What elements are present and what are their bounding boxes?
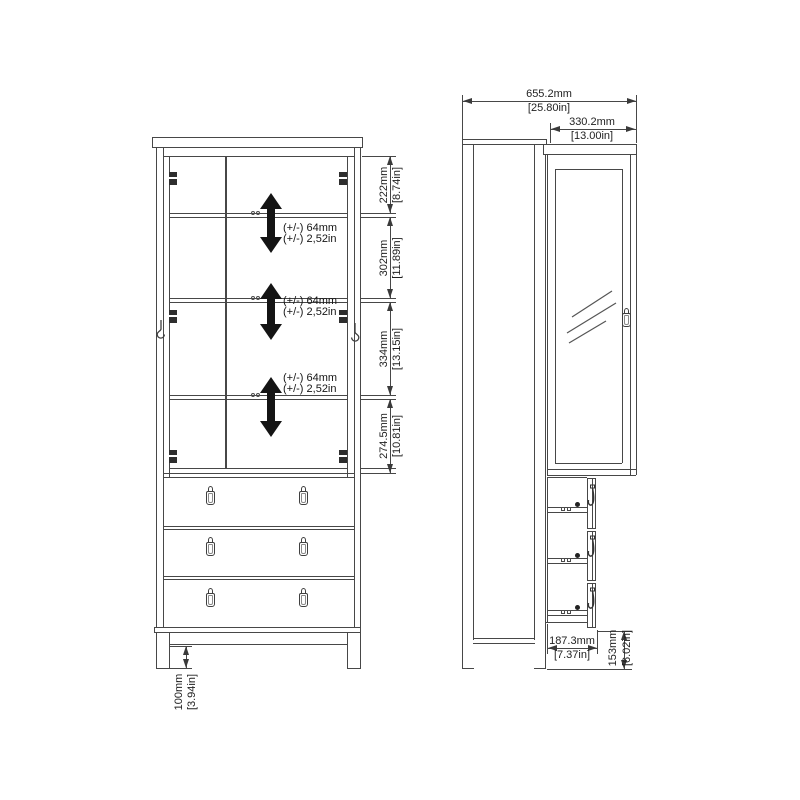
shelf-pin-icon [251,296,260,300]
dim-section4-mm: 274.5mm [378,413,390,459]
dim-section3-mm: 334mm [378,331,390,368]
hinge-icon [169,172,177,185]
dim-drawerheight-inch: [6.02in] [621,630,633,666]
shelf-adjust-note: (+/-) 64mm (+/-) 2,52in [283,296,337,318]
shelf-adjustable-arrow-icon [260,283,282,340]
dim-section2-inch: [11.89in] [391,237,403,278]
dim-depth-mm: 655.2mm [526,88,572,100]
drawer-roller-icon [575,502,580,507]
shelf-adjustable-arrow-icon [260,193,282,253]
shelf-adjustable-arrow-icon [260,377,282,437]
center-partition [225,156,227,468]
drawer-hook-handle-icon [586,536,600,560]
shelf-pin-icon [251,393,260,397]
hinge-icon [169,450,177,463]
hinge-icon [339,172,347,185]
shelf-adjust-note: (+/-) 64mm (+/-) 2,52in [283,373,337,395]
dim-leg-mm: 100mm [173,674,185,711]
dim-drawerext-mm: 187.3mm [549,635,595,647]
front-bottom-board [154,627,361,633]
hinge-icon [169,310,177,323]
dimension-diagram: (+/-) 64mm (+/-) 2,52in (+/-) 64mm (+/-)… [0,0,800,800]
front-top-board [152,137,363,148]
dim-depth-inch: [25.80in] [528,102,570,114]
dim-section4-inch: [10.81in] [391,415,403,457]
drawer-roller-icon [575,605,580,610]
hinge-icon [339,450,347,463]
dim-drawerheight-mm: 153mm [607,630,619,667]
door-edge-handle-icon [154,320,166,340]
dim-doorwidth-inch: [13.00in] [571,130,613,142]
dim-section3-inch: [13.15in] [391,328,403,370]
dim-section2-mm: 302mm [378,240,390,277]
dim-drawerext-inch: [7.37in] [554,649,590,661]
shelf-adjust-note: (+/-) 64mm (+/-) 2,52in [283,223,337,245]
door-edge-handle-icon [350,323,362,343]
drawer-hook-handle-icon [586,485,600,509]
dim-leg-inch: [3.94in] [186,674,198,710]
dim-section1-inch: [8.74in] [391,167,403,203]
shelf-pin-icon [251,211,260,215]
dim-section1-mm: 222mm [378,167,390,204]
drawer-hook-handle-icon [586,588,600,612]
drawer-roller-icon [575,553,580,558]
dim-doorwidth-mm: 330.2mm [569,116,615,128]
hinge-icon [339,310,347,323]
glass-reflection-icon [560,285,620,347]
open-door-top-rail [543,144,637,155]
